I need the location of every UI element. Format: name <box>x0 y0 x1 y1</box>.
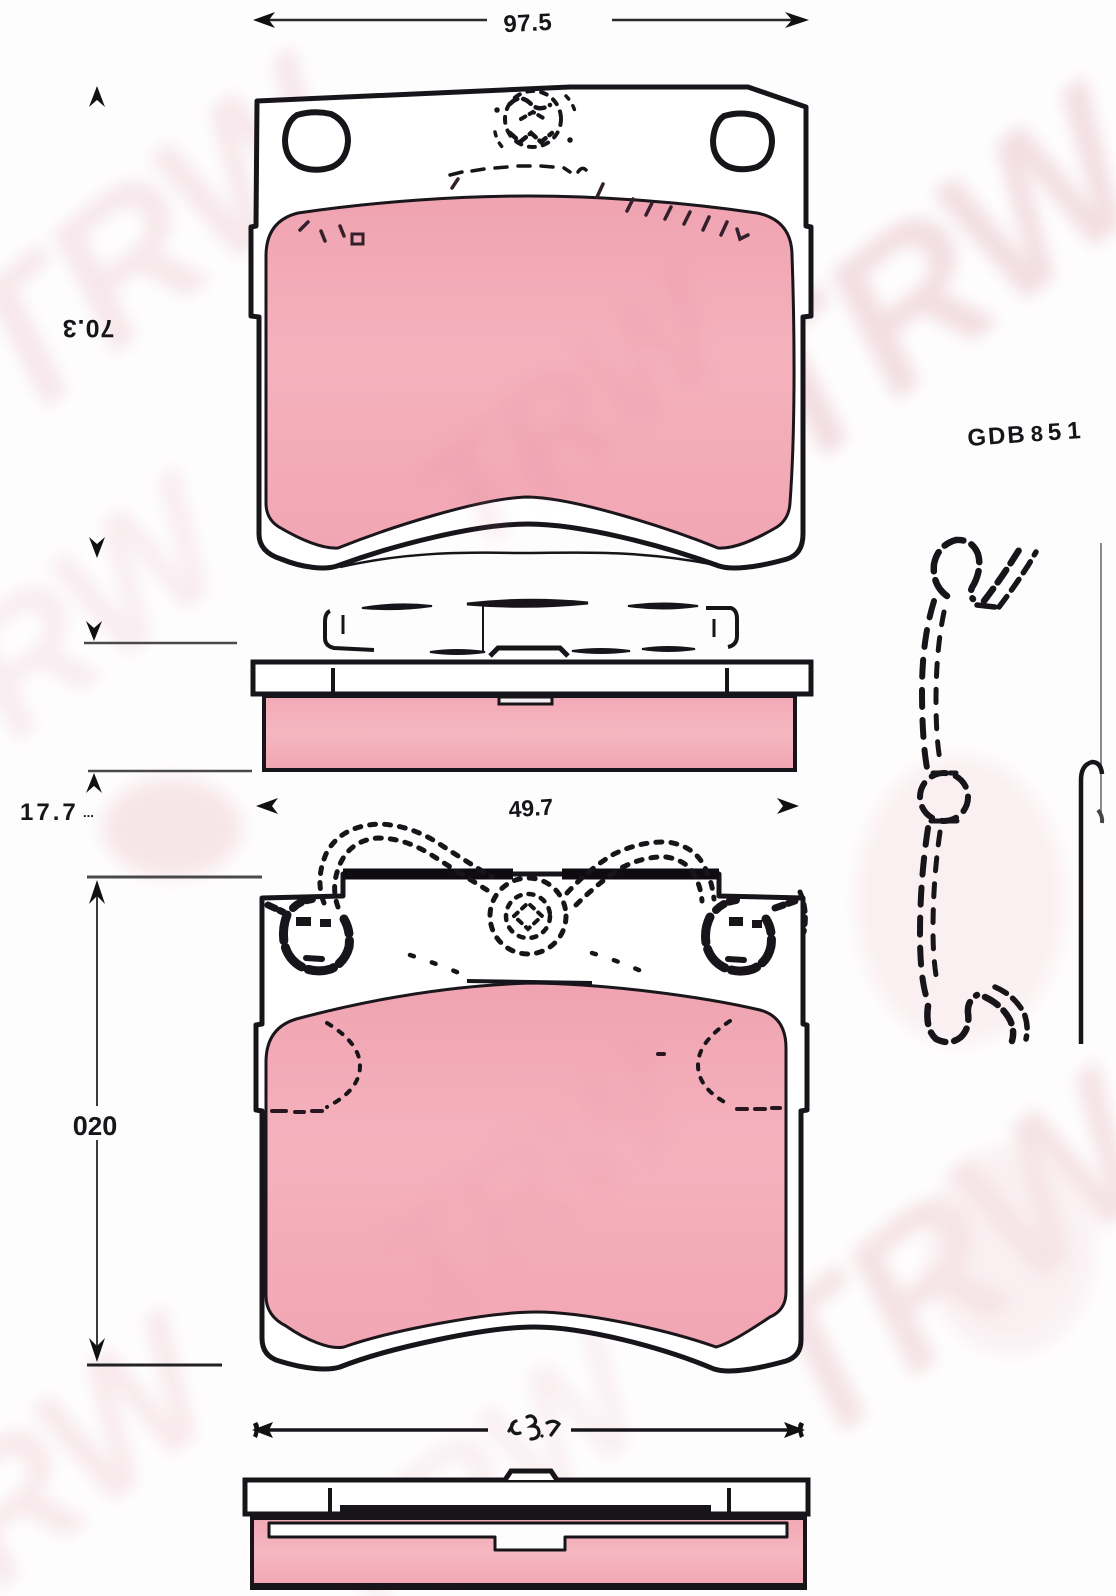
svg-text:49.7: 49.7 <box>508 793 554 822</box>
svg-text:97.5: 97.5 <box>503 9 553 39</box>
svg-text:020: 020 <box>73 1111 118 1141</box>
svg-text:...: ... <box>83 805 94 820</box>
svg-text:17.7: 17.7 <box>20 799 79 826</box>
svg-text:70.3: 70.3 <box>62 314 115 342</box>
